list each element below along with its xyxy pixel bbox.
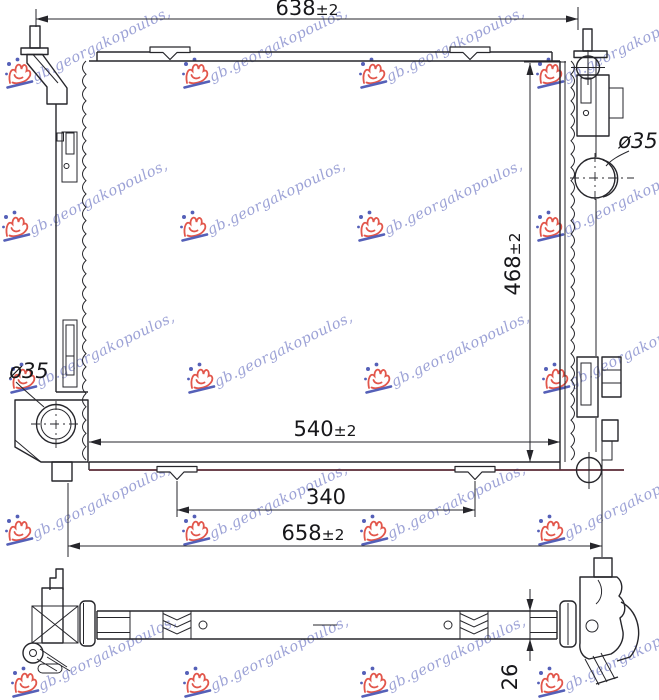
watermark: gb.georgakopoulos, bbox=[357, 158, 525, 241]
watermark-text: gb.georgakopoulos, bbox=[384, 5, 528, 86]
watermark: gb.georgakopoulos, bbox=[187, 310, 355, 393]
watermark-text: gb.georgakopoulos, bbox=[205, 158, 349, 239]
watermark-text: gb.georgakopoulos, bbox=[30, 5, 174, 86]
watermark: gb.georgakopoulos, bbox=[2, 158, 170, 241]
dim-height-label: 468±2 bbox=[501, 233, 525, 296]
watermark-text: gb.georgakopoulos, bbox=[385, 462, 529, 543]
watermark: gb.georgakopoulos, bbox=[360, 462, 528, 545]
dim-clip-spacing-label: 340 bbox=[306, 485, 346, 509]
dim-top-width-label: 638±2 bbox=[276, 0, 339, 20]
dim-depth-label: 26 bbox=[498, 664, 522, 691]
dim-inlet-diameter: ø35 bbox=[606, 129, 658, 166]
profile-hole-right bbox=[444, 621, 452, 629]
watermark-text: gb.georgakopoulos, bbox=[212, 310, 356, 391]
left-upper-bracket bbox=[57, 132, 77, 182]
dim-height: 468±2 bbox=[501, 62, 566, 462]
dim-core-width-label: 540±2 bbox=[294, 417, 357, 441]
dim-core-width: 540±2 bbox=[89, 417, 560, 442]
watermark-text: gb.georgakopoulos, bbox=[30, 462, 174, 543]
dim-overall-width-label: 658±2 bbox=[282, 521, 345, 545]
watermark-text: gb.georgakopoulos, bbox=[382, 158, 526, 239]
watermark: gb.georgakopoulos, bbox=[180, 158, 348, 241]
bottom-left-outlet bbox=[15, 400, 88, 481]
watermark-text: gb.georgakopoulos, bbox=[34, 310, 178, 391]
outlet-diameter-label: ø35 bbox=[8, 359, 49, 383]
right-upper-bracket bbox=[577, 75, 623, 136]
watermark-text: gb.georgakopoulos, bbox=[36, 614, 180, 695]
watermark: gb.georgakopoulos, bbox=[536, 158, 659, 241]
right-serrated-edge bbox=[571, 61, 575, 460]
profile-hole-left bbox=[199, 621, 207, 629]
watermark: gb.georgakopoulos, bbox=[364, 310, 532, 393]
top-clip-left bbox=[150, 47, 190, 60]
radiator-technical-drawing: gb.georgakopoulos, gb.georgakopoulos, gb… bbox=[0, 0, 659, 700]
core-top-edge bbox=[89, 52, 560, 61]
watermark: gb.georgakopoulos, bbox=[183, 614, 351, 697]
watermark: gb.georgakopoulos, bbox=[537, 462, 659, 545]
watermark-text: gb.georgakopoulos, bbox=[561, 158, 659, 239]
watermark-text: gb.georgakopoulos, bbox=[27, 158, 171, 239]
watermark: gb.georgakopoulos, bbox=[5, 462, 173, 545]
watermark: gb.georgakopoulos, bbox=[359, 5, 527, 88]
bottom-left-mounting-pin bbox=[52, 462, 72, 481]
watermark-text: gb.georgakopoulos, bbox=[208, 614, 352, 695]
watermark-text: gb.georgakopoulos, bbox=[389, 310, 533, 391]
watermark-text: gb.georgakopoulos, bbox=[561, 5, 659, 86]
inlet-diameter-label: ø35 bbox=[617, 129, 658, 153]
